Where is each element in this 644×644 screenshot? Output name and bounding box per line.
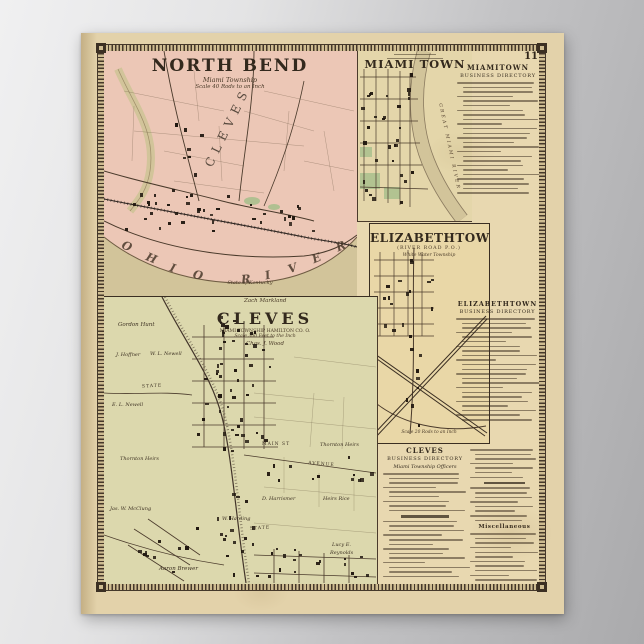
- building-footprint: [252, 543, 255, 547]
- miamitown-directory: MIAMITOWN BUSINESS DIRECTORY: [457, 63, 539, 215]
- directory-entry-line: [389, 557, 465, 559]
- miamitown-directory-title: MIAMITOWN: [457, 63, 539, 72]
- building-footprint: [185, 546, 189, 549]
- building-footprint: [219, 347, 222, 350]
- building-footprint: [153, 556, 156, 559]
- elizabethtown-directory: ELIZABETHTOWN BUSINESS DIRECTORY: [456, 300, 539, 440]
- building-footprint: [279, 568, 281, 572]
- building-footprint: [223, 432, 226, 435]
- directory-entry-line: [389, 505, 446, 507]
- building-footprint: [411, 404, 414, 407]
- cleves-directory-section: Miami Township Officers: [383, 464, 467, 470]
- building-footprint: [252, 526, 254, 529]
- directory-entry-line: [463, 142, 514, 144]
- directory-entry-line: [457, 137, 527, 139]
- directory-entry-line: [463, 188, 518, 190]
- directory-entry-line: [475, 506, 534, 508]
- building-footprint: [299, 554, 302, 556]
- directory-entry-line: [462, 364, 536, 366]
- building-footprint: [269, 366, 271, 368]
- building-footprint: [260, 221, 263, 224]
- building-footprint: [210, 214, 213, 216]
- building-footprint: [397, 105, 400, 108]
- building-footprint: [289, 222, 292, 225]
- building-footprint: [411, 171, 414, 174]
- building-footprint: [273, 464, 275, 468]
- directory-entries: [457, 82, 539, 194]
- directory-entry-line: [456, 332, 512, 334]
- building-footprint: [293, 559, 295, 562]
- directory-entry-line: [463, 105, 511, 107]
- map-label: D. Harrismer: [262, 497, 295, 502]
- building-footprint: [348, 456, 351, 458]
- directory-entry-line: [456, 318, 535, 320]
- building-footprint: [360, 556, 363, 559]
- miami-town-subtitle-line: [394, 54, 436, 55]
- building-footprint: [409, 335, 412, 338]
- directory-entry-line: [457, 151, 501, 153]
- directory-entry-line: [470, 463, 513, 465]
- building-footprint: [250, 332, 252, 335]
- building-footprint: [354, 576, 357, 578]
- building-footprint: [297, 205, 299, 208]
- directory-entry-line: [463, 156, 532, 158]
- building-footprint: [312, 230, 315, 233]
- building-footprint: [140, 193, 143, 197]
- building-footprint: [410, 73, 413, 77]
- map-label: MAIN ST: [262, 443, 290, 448]
- building-footprint: [184, 128, 187, 132]
- building-footprint: [159, 227, 162, 230]
- elizabethtown-directory-title: ELIZABETHTOWN: [456, 300, 539, 308]
- directory-entry-line: [475, 458, 536, 460]
- directory-entry-line: [383, 501, 449, 503]
- building-footprint: [229, 516, 231, 519]
- directory-entry-line: [457, 178, 524, 180]
- building-footprint: [250, 204, 252, 206]
- directory-entries: [383, 473, 467, 511]
- cleves-title-block: CLEVES MIAMI TOWNSHIP HAMILTON CO. O. Sc…: [190, 309, 340, 347]
- map-label: W. L. Newell: [150, 352, 182, 357]
- building-footprint: [344, 563, 347, 566]
- directory-entry-line: [457, 96, 513, 98]
- directory-entry-line: [463, 87, 532, 89]
- building-footprint: [212, 220, 214, 224]
- building-footprint: [278, 479, 281, 483]
- building-footprint: [175, 123, 179, 127]
- building-footprint: [289, 465, 291, 468]
- directory-entry-line: [462, 327, 531, 329]
- directory-entry-line: [456, 373, 526, 375]
- building-footprint: [232, 340, 234, 342]
- building-footprint: [252, 218, 255, 220]
- building-footprint: [212, 230, 215, 232]
- directory-entry-line: [457, 192, 529, 194]
- building-footprint: [271, 552, 274, 554]
- directory-entry-line: [463, 114, 525, 116]
- directory-entry-line: [463, 100, 538, 102]
- building-footprint: [150, 212, 153, 215]
- building-footprint: [168, 222, 171, 225]
- building-footprint: [245, 343, 248, 345]
- building-footprint: [196, 527, 198, 530]
- directory-entry-line: [383, 473, 459, 475]
- directory-entry-line: [463, 119, 538, 121]
- cleves-scale-note: Scale 300 Feet to the Inch: [190, 334, 340, 339]
- building-footprint: [241, 550, 244, 553]
- cleves-top-label: Zach Markland: [244, 298, 286, 304]
- directory-entry-line: [383, 576, 459, 578]
- directory-entry-line: [475, 472, 512, 474]
- building-footprint: [417, 387, 420, 389]
- building-footprint: [133, 203, 136, 206]
- building-footprint: [292, 216, 295, 220]
- building-footprint: [138, 550, 142, 553]
- building-footprint: [223, 447, 226, 450]
- directory-entry-line: [463, 133, 530, 135]
- building-footprint: [416, 377, 420, 380]
- building-footprint: [398, 280, 402, 282]
- building-footprint: [392, 329, 396, 333]
- building-footprint: [419, 354, 422, 356]
- directory-entry-line: [462, 392, 533, 394]
- building-footprint: [154, 194, 156, 197]
- directory-entry-line: [457, 110, 523, 112]
- building-footprint: [186, 202, 189, 205]
- building-footprint: [256, 575, 259, 577]
- directory-section-rule: [484, 482, 524, 484]
- building-footprint: [369, 194, 372, 196]
- building-footprint: [219, 375, 221, 378]
- directory-entry-line: [470, 575, 509, 577]
- building-footprint: [144, 218, 147, 220]
- directory-entry-line: [475, 556, 514, 558]
- map-miami-town: MIAMI TOWN GREAT MIAMI RIVER: [357, 51, 472, 222]
- frame-corner-ornament: [537, 43, 547, 53]
- building-footprint: [205, 403, 208, 405]
- directory-entry-line: [462, 323, 526, 325]
- building-footprint: [294, 571, 296, 573]
- elizabethtown-township-note: White Water Township: [370, 253, 488, 258]
- building-footprint: [402, 323, 404, 327]
- building-footprint: [222, 332, 225, 334]
- building-footprint: [225, 535, 227, 537]
- building-footprint: [155, 202, 157, 205]
- building-footprint: [233, 320, 236, 322]
- building-footprint: [237, 329, 240, 332]
- directory-entry-line: [475, 538, 526, 540]
- directory-entry-line: [463, 160, 521, 162]
- building-footprint: [187, 148, 191, 150]
- directory-entry-line: [383, 487, 436, 489]
- directory-entry-line: [457, 165, 523, 167]
- directory-entry-line: [457, 123, 502, 125]
- directory-entry-line: [389, 544, 433, 546]
- directory-entry-line: [383, 548, 449, 550]
- directory-entries: [383, 521, 467, 578]
- building-footprint: [190, 194, 193, 197]
- building-footprint: [223, 341, 226, 343]
- building-footprint: [226, 555, 228, 557]
- directory-entry-line: [463, 146, 539, 148]
- building-footprint: [186, 196, 188, 198]
- building-footprint: [363, 141, 367, 145]
- building-footprint: [400, 174, 402, 177]
- building-footprint: [221, 316, 223, 319]
- elizabethtown-title: ELIZABETHTOWN: [370, 231, 488, 245]
- north-bend-subtitle: Miami Township: [120, 76, 340, 84]
- map-label: E. L. Newell: [112, 403, 143, 408]
- directory-entry-line: [470, 449, 533, 451]
- screenshot-stage: NORTH BEND Miami Township Scale 40 Rods …: [0, 0, 644, 644]
- map-label: J. Hoffner: [116, 353, 140, 358]
- building-footprint: [280, 210, 283, 213]
- cleves-title: CLEVES: [190, 309, 340, 328]
- building-footprint: [245, 440, 248, 443]
- building-footprint: [388, 296, 391, 300]
- building-footprint: [253, 344, 257, 348]
- building-footprint: [233, 541, 236, 544]
- directory-entry-line: [456, 414, 520, 416]
- elizabethtown-po-note: (RIVER ROAD P.O.): [370, 246, 488, 251]
- building-footprint: [388, 145, 391, 149]
- map-label: Lucy E.: [332, 543, 351, 548]
- building-footprint: [234, 369, 237, 372]
- building-footprint: [399, 127, 402, 129]
- directory-entry-line: [462, 410, 536, 412]
- directory-entry-line: [383, 521, 457, 523]
- directory-entries: [470, 533, 539, 584]
- building-footprint: [431, 279, 434, 282]
- directory-entry-line: [456, 387, 503, 389]
- building-footprint: [204, 378, 208, 380]
- map-label: Aaron Brewer: [159, 567, 198, 573]
- directory-entry-line: [475, 510, 515, 512]
- map-frame: NORTH BEND Miami Township Scale 40 Rods …: [97, 44, 546, 591]
- directory-column-right: Miscellaneous: [470, 446, 539, 582]
- building-footprint: [237, 425, 240, 428]
- directory-entries: [470, 449, 539, 478]
- map-label: Thornton Heirs: [120, 457, 159, 462]
- directory-entry-line: [389, 539, 463, 541]
- directory-entry-line: [456, 401, 528, 403]
- atlas-poster: NORTH BEND Miami Township Scale 40 Rods …: [81, 33, 564, 614]
- building-footprint: [372, 197, 376, 200]
- directory-entry-line: [462, 350, 520, 352]
- directory-entry-line: [389, 571, 452, 573]
- directory-entry-line: [463, 183, 529, 185]
- directory-entry-line: [470, 477, 523, 479]
- building-footprint: [148, 203, 151, 206]
- building-footprint: [225, 325, 229, 329]
- building-footprint: [175, 212, 178, 214]
- map-label: Thornton Heirs: [320, 443, 359, 448]
- building-footprint: [218, 394, 222, 398]
- directory-entry-line: [470, 515, 527, 517]
- building-footprint: [396, 139, 399, 142]
- map-label: Heirs Rice: [323, 497, 350, 502]
- directory-entry-line: [462, 336, 532, 338]
- building-footprint: [383, 297, 385, 300]
- building-footprint: [125, 228, 128, 231]
- building-footprint: [283, 554, 286, 558]
- building-footprint: [408, 97, 410, 101]
- building-footprint: [276, 548, 278, 550]
- directory-entries: [456, 318, 539, 421]
- page-number: 11: [524, 51, 538, 62]
- building-footprint: [240, 418, 243, 422]
- building-footprint: [237, 379, 239, 382]
- directory-entry-line: [475, 552, 538, 554]
- building-footprint: [197, 211, 200, 214]
- directory-entry-line: [389, 530, 464, 532]
- directory-entry-line: [389, 510, 465, 512]
- building-footprint: [178, 547, 180, 550]
- building-footprint: [245, 500, 248, 503]
- north-bend-scale-note: Scale 40 Rods to an Inch: [120, 84, 340, 90]
- cleves-directory: CLEVES BUSINESS DIRECTORY Miami Township…: [383, 446, 467, 582]
- elizabethtown-directory-subtitle: BUSINESS DIRECTORY: [456, 309, 539, 315]
- directory-entry-line: [456, 346, 520, 348]
- building-footprint: [384, 324, 386, 327]
- directory-entry-line: [389, 491, 466, 493]
- directory-entry-line: [475, 467, 534, 469]
- miami-town-roads-river-art: [358, 51, 472, 221]
- building-footprint: [365, 189, 368, 193]
- building-footprint: [235, 434, 239, 437]
- directory-entry-line: [470, 487, 530, 489]
- directory-entry-line: [475, 579, 537, 581]
- building-footprint: [227, 195, 230, 197]
- frame-corner-ornament: [96, 582, 106, 592]
- building-footprint: [146, 555, 149, 557]
- map-cleves: Zach Markland CLEVES MIAMI TOWNSHIP HAMI…: [104, 296, 378, 584]
- building-footprint: [294, 549, 297, 552]
- cleves-credit: Chas. J. Wood: [190, 341, 340, 347]
- building-footprint: [264, 439, 268, 442]
- directory-entry-line: [462, 405, 508, 407]
- directory-entry-line: [389, 478, 459, 480]
- building-footprint: [404, 180, 406, 183]
- building-footprint: [358, 479, 361, 482]
- cleves-directory-subtitle: BUSINESS DIRECTORY: [383, 456, 467, 462]
- building-footprint: [216, 373, 218, 376]
- building-footprint: [369, 93, 372, 96]
- building-footprint: [431, 307, 433, 311]
- building-footprint: [383, 116, 386, 119]
- building-footprint: [220, 363, 223, 366]
- miami-town-title: MIAMI TOWN: [358, 57, 472, 71]
- directory-entry-line: [389, 525, 454, 527]
- building-footprint: [232, 493, 236, 497]
- building-footprint: [172, 571, 175, 573]
- building-footprint: [202, 418, 205, 421]
- miscellaneous-header: Miscellaneous: [470, 524, 539, 530]
- building-footprint: [230, 529, 234, 532]
- building-footprint: [232, 396, 235, 399]
- cleves-directory-title: CLEVES: [383, 446, 467, 455]
- directory-entry-line: [383, 534, 442, 536]
- building-footprint: [236, 496, 240, 498]
- building-footprint: [394, 144, 397, 147]
- building-footprint: [353, 474, 356, 476]
- building-footprint: [158, 540, 161, 543]
- building-footprint: [400, 201, 403, 205]
- map-label: Reynolds: [330, 551, 353, 556]
- building-footprint: [188, 156, 192, 158]
- directory-entry-line: [389, 567, 470, 569]
- building-footprint: [390, 303, 392, 305]
- map-label: Gordon Hunt: [118, 323, 155, 329]
- building-footprint: [375, 159, 378, 162]
- building-footprint: [145, 551, 147, 553]
- building-footprint: [217, 517, 219, 520]
- directory-entry-line: [475, 565, 524, 567]
- building-footprint: [360, 478, 363, 481]
- directory-entry-line: [470, 501, 518, 503]
- directory-entry-line: [383, 562, 425, 564]
- building-footprint: [392, 160, 394, 162]
- building-footprint: [410, 348, 414, 352]
- building-footprint: [366, 574, 369, 576]
- directory-entry-line: [475, 492, 527, 494]
- building-footprint: [427, 281, 431, 284]
- directory-entry-line: [462, 396, 522, 398]
- directory-entry-line: [475, 454, 531, 456]
- building-footprint: [194, 173, 197, 177]
- directory-entry-line: [463, 91, 534, 93]
- building-footprint: [230, 389, 232, 391]
- directory-entry-line: [475, 542, 534, 544]
- building-footprint: [367, 126, 370, 129]
- building-footprint: [363, 180, 365, 184]
- building-footprint: [254, 331, 256, 334]
- directory-entries: [470, 487, 539, 521]
- frame-corner-ornament: [537, 582, 547, 592]
- directory-section-rule: [401, 515, 450, 517]
- directory-entry-line: [463, 128, 537, 130]
- building-footprint: [172, 189, 175, 192]
- building-footprint: [268, 575, 271, 578]
- building-footprint: [216, 208, 219, 211]
- directory-entry-line: [463, 169, 508, 171]
- building-footprint: [167, 204, 170, 206]
- building-footprint: [246, 394, 249, 396]
- building-footprint: [244, 537, 247, 540]
- miamitown-directory-subtitle: BUSINESS DIRECTORY: [457, 73, 539, 79]
- north-bend-title: NORTH BEND: [120, 56, 340, 76]
- directory-entry-line: [470, 561, 525, 563]
- building-footprint: [181, 221, 184, 224]
- building-footprint: [374, 116, 378, 119]
- building-footprint: [227, 406, 230, 408]
- map-label: W. Harding: [222, 517, 250, 522]
- building-footprint: [370, 472, 374, 475]
- directory-entry-line: [462, 355, 538, 357]
- building-footprint: [245, 354, 247, 357]
- building-footprint: [312, 478, 314, 480]
- directory-entry-line: [470, 547, 511, 549]
- building-footprint: [219, 410, 221, 413]
- building-footprint: [317, 475, 319, 479]
- building-footprint: [284, 217, 286, 220]
- building-footprint: [223, 538, 226, 541]
- building-footprint: [361, 107, 364, 110]
- directory-entry-line: [475, 520, 523, 522]
- directory-entry-line: [470, 533, 536, 535]
- building-footprint: [386, 95, 388, 98]
- directory-entry-line: [462, 378, 518, 380]
